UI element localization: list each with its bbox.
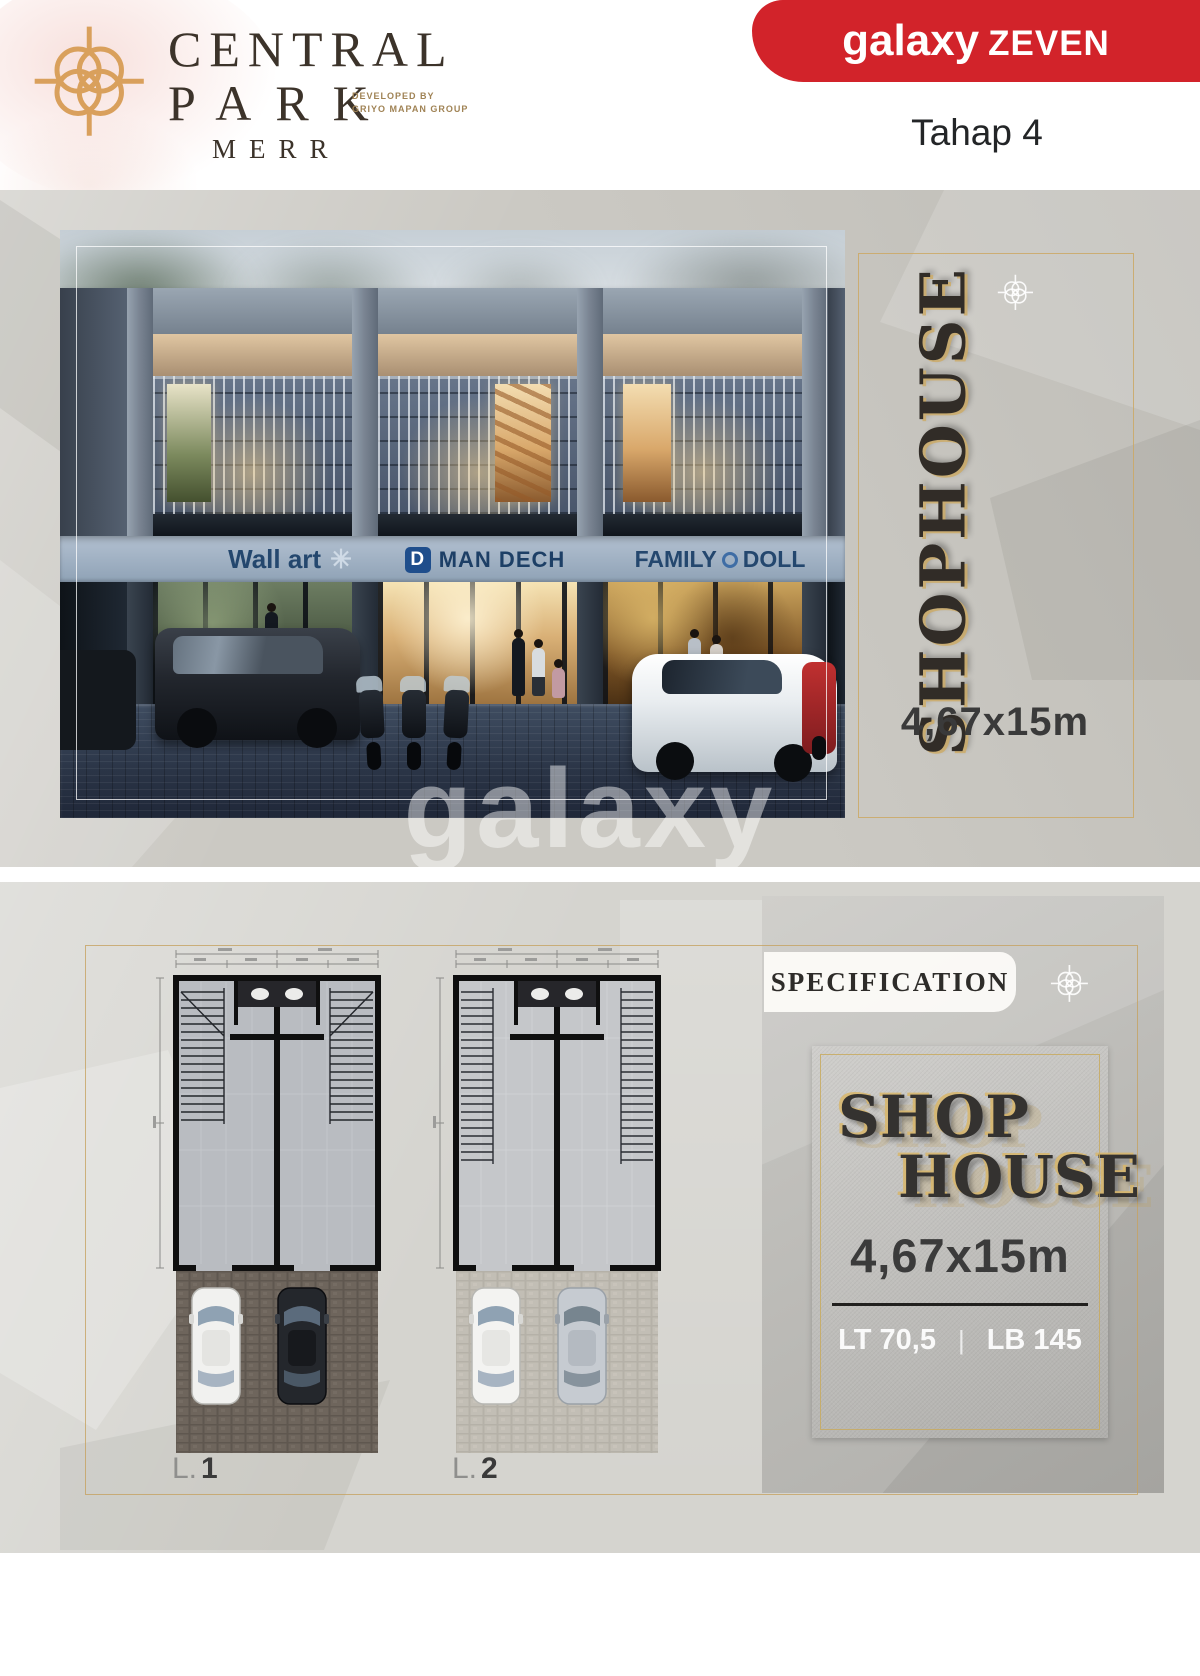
spec-card-divider — [832, 1303, 1088, 1306]
spec-card-title-line1: SHOP — [838, 1088, 1108, 1146]
area-separator: | — [958, 1325, 965, 1356]
shophouse-dimension: 4,67x15m — [870, 700, 1120, 745]
land-area-value: LT 70,5 — [838, 1324, 936, 1357]
plan2-prefix: L. — [452, 1452, 477, 1485]
building-right-edge — [828, 288, 845, 536]
car-top-silver — [555, 1288, 609, 1404]
publisher-banner: galaxy ZEVEN — [752, 0, 1200, 82]
panel-flower-logo-icon — [995, 272, 1035, 312]
car-top-white — [189, 1288, 243, 1404]
phase-label: Tahap 4 — [872, 112, 1082, 154]
floor-plan-2-label: L.2 — [452, 1452, 498, 1486]
brand-location: MERR — [212, 134, 341, 165]
plan1-prefix: L. — [172, 1452, 197, 1485]
spec-flower-logo-icon — [1048, 962, 1090, 1004]
floor-plan-1 — [148, 948, 393, 1458]
specification-card: SHOP HOUSE 4,67x15m LT 70,5 | LB 145 — [812, 1046, 1108, 1438]
building-area-value: LB 145 — [987, 1324, 1082, 1357]
central-park-flower-logo-icon — [26, 18, 150, 142]
spec-card-dimension: 4,67x15m — [812, 1228, 1108, 1283]
developer-credit-line2: GRIYO MAPAN GROUP — [352, 103, 468, 116]
car-top-white — [469, 1288, 523, 1404]
shophouse-vertical-title: SHOPHOUSE — [907, 266, 980, 756]
interior-wall — [230, 1034, 324, 1040]
spec-card-areas: LT 70,5 | LB 145 — [812, 1324, 1108, 1357]
specification-heading: SPECIFICATION — [764, 952, 1016, 1012]
floor-plan-2 — [428, 948, 673, 1458]
interior-wall — [510, 1034, 604, 1040]
wc-block — [236, 981, 318, 1007]
photo-inner-frame — [76, 246, 827, 800]
floor-plan-1-label: L.1 — [172, 1452, 218, 1486]
wc-block — [516, 981, 598, 1007]
plan1-number: 1 — [201, 1452, 218, 1485]
plan2-number: 2 — [481, 1452, 498, 1485]
developer-credit: DEVELOPED BY GRIYO MAPAN GROUP — [352, 90, 468, 116]
shophouse-render: Wall art ✳ D MAN DECH FAMILY DOLL — [60, 230, 845, 818]
spec-card-title-line2: HOUSE — [898, 1148, 1108, 1206]
developer-credit-line1: DEVELOPED BY — [352, 90, 468, 103]
brand-name-line1: CENTRAL — [168, 20, 455, 78]
car-top-dark — [275, 1288, 329, 1404]
publisher-logo-secondary: ZEVEN — [988, 24, 1110, 64]
stairs-left — [181, 988, 224, 1124]
publisher-logo-primary: galaxy — [842, 16, 979, 66]
stairs-right — [330, 988, 373, 1124]
